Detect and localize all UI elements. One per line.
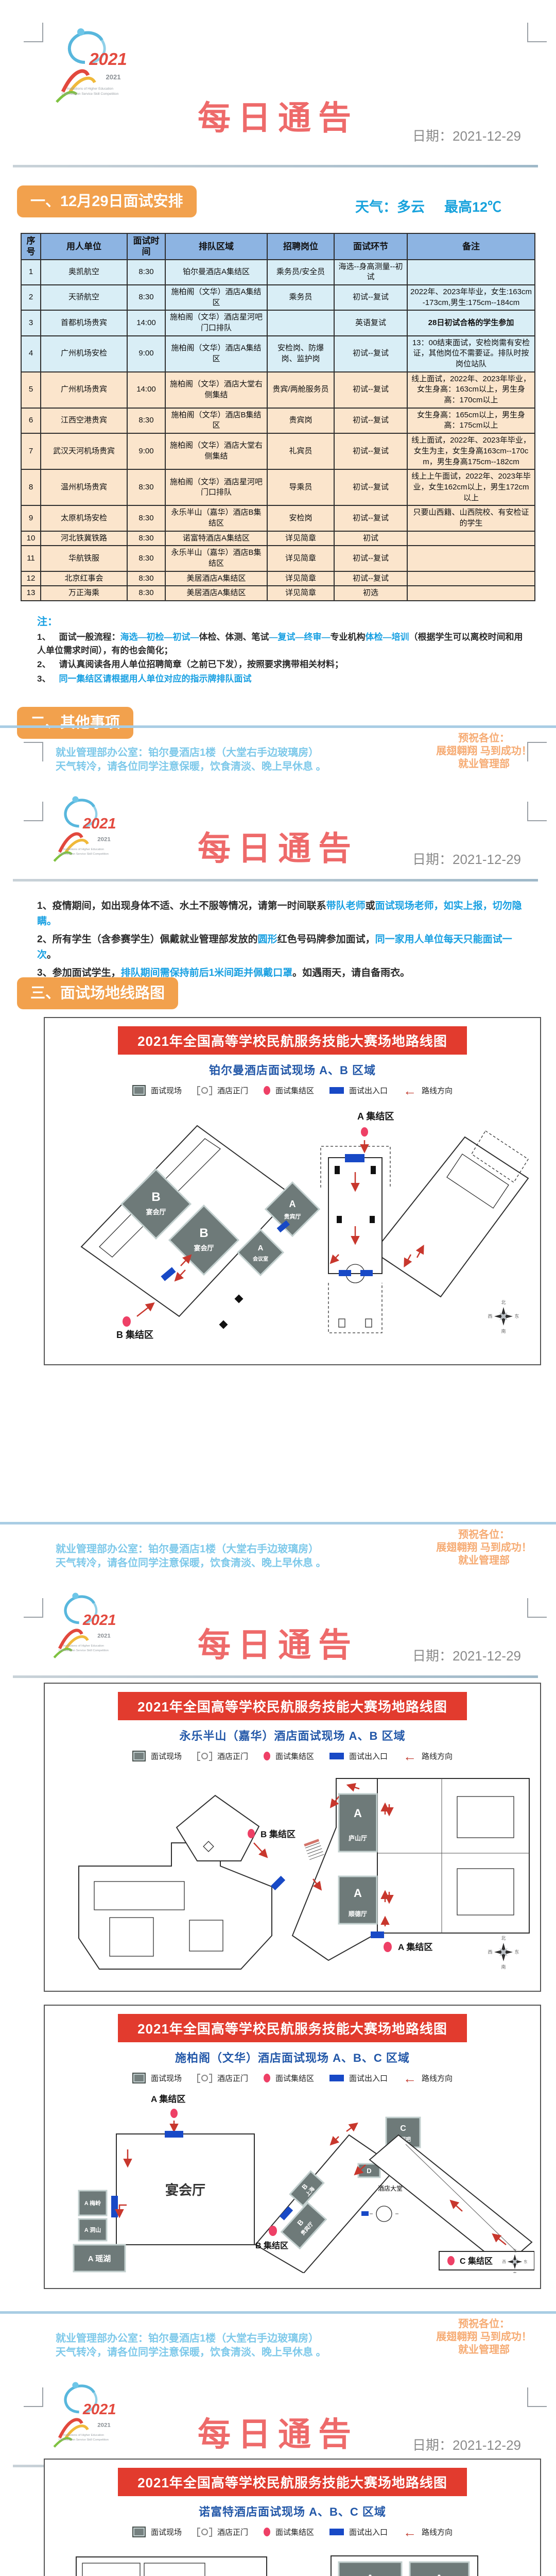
logo-head-dot [72,796,78,803]
cell-note: 13：00结束面试，安检岗需有安检证，其他岗位不需要证。排队时按岗位站队 [407,336,535,372]
c-assembly-label: C 集结区 [460,2256,493,2266]
item-2-highlight: 圆形 [258,934,277,945]
svg-text:A: A [366,2572,374,2576]
item-1-highlight: 带队老师 [326,901,366,911]
cell-no: 7 [21,433,41,469]
map-subtitle-yongle: 永乐半山（嘉华）酒店面试现场 A、B 区域 [45,1727,540,1743]
cell-time: 8:30 [127,586,165,601]
cell-area: 美居酒店A集结区 [165,571,267,586]
legend-item: 面试现场 [132,1751,182,1761]
room-letter: B [151,1190,160,1204]
cell-position [267,310,334,335]
legend-item: 面试现场 [132,2527,182,2537]
legend-item: 酒店正门 [197,1085,248,1096]
legend-label: 路线方向 [422,1751,453,1761]
date-label: 日期：2021-12-29 [346,2435,521,2454]
note-1-number: 1、 [37,632,59,642]
novotel-floor-plan: 电梯厅 1F [50,2541,534,2576]
note-2-text: 请认真阅读各用人单位招聘简章（之前已下发），按照要求携带相关材料； [59,659,343,669]
legend-item: 面试现场 [132,1085,182,1096]
logo-year-small: 2021 [106,73,121,81]
item-2-text: 2、所有学生（含参赛学生）佩戴就业管理部发放的 [37,934,258,945]
table-row: 13万正海乘8:30美居酒店A集结区详见简章初选 [21,586,535,601]
legend-label: 面试出入口 [349,1751,388,1761]
footer-divider [0,1522,556,1524]
logo-head-dot [72,1593,78,1599]
map-legend: 面试现场酒店正门面试集结区面试出入口←路线方向 [45,2073,540,2083]
route-arrow [137,1303,153,1316]
b-assembly-label: B 集结区 [116,1329,153,1340]
b-assembly-label: B 集结区 [255,2241,288,2250]
page-4: 2021 2021 Institutions of Higher Educati… [0,2365,556,2576]
legend-item: 面试集结区 [264,2073,314,2083]
legend-label: 酒店正门 [217,2527,248,2537]
pullman-floor-plan: B 宴会厅 B 宴会厅 A 贵宾厅 A 会议室 [50,1100,534,1340]
map-room-shunde: A 顺德厅 [339,1876,377,1924]
col-header-note: 备注 [407,233,535,260]
cell-time: 8:30 [127,571,165,586]
cell-area: 施柏阁（文华）酒店星河吧门口排队 [165,469,267,505]
cell-company: 太原机场安检 [41,505,127,531]
note-2: 2、请认真阅读各用人单位招聘简章（之前已下发），按照要求携带相关材料； [37,658,524,671]
left-wing [81,1126,292,1316]
cell-no: 13 [21,586,41,601]
legend-label: 面试现场 [151,2527,182,2537]
footer-wish-line2: 展翅翱翔 马到成功！ [407,1541,556,1554]
cell-stage: 英语复试 [334,310,407,335]
cell-stage: 初试--复试 [334,505,407,531]
room-name: 贵宾厅 [284,1213,301,1220]
page-1: 2021 2021 Institutions of Higher Educati… [0,0,556,779]
header-divider [13,879,538,882]
legend-label: 面试现场 [151,1085,182,1096]
svg-text:西: 西 [488,1314,492,1319]
direction-icon: ← [403,1087,416,1094]
cell-time: 8:30 [127,531,165,546]
note-1-text: 专业机构 [330,632,365,642]
room-letter: A [289,1199,296,1209]
a-assembly-dot [361,1127,368,1137]
cell-stage: 初试--复试 [334,469,407,505]
cell-no: 4 [21,336,41,372]
logo-head-dot [72,2382,78,2388]
note-1-highlight: 海选—初检—初试— [120,632,199,642]
site-icon [132,1085,146,1096]
cell-time: 8:30 [127,469,165,505]
item-1: 1、疫情期间，如出现身体不适、水土不服等情况，请第一时间联系带队老师或面试现场老… [37,899,526,930]
date-label: 日期：2021-12-29 [346,849,521,868]
cell-company: 万正海乘 [41,586,127,601]
cell-note: 线上上午面试，2022年、2023年毕业，女生162cm以上，男生172cm以上 [407,469,535,505]
room-letter: A [258,1244,264,1252]
item-2: 2、所有学生（含参赛学生）佩戴就业管理部发放的圆形红色号码牌参加面试，同一家用人… [37,932,526,963]
item-2-text: 。 [47,950,57,960]
entrance-icon [329,1087,344,1094]
table-row: 5广州机场贵宾14:00施柏阁（文华）酒店大堂右侧集结贵宾/两舱服务员初试--复… [21,372,535,408]
notes-label: 注： [37,614,524,630]
b-assembly-dot [248,1829,255,1838]
cell-company: 华航铁服 [41,546,127,571]
date-label: 日期：2021-12-29 [346,1646,521,1665]
item-3-text: 3、参加面试学生， [37,968,121,978]
cell-note [407,586,535,601]
svg-text:D: D [367,2167,371,2175]
room-name: 宴会厅 [194,1244,214,1252]
footer-wish-line2: 展翅翱翔 马到成功！ [407,745,556,758]
a-assembly-label: A 集结区 [357,1111,394,1122]
cell-area: 施柏阁（文华）酒店A集结区 [165,336,267,372]
cell-time: 9:00 [127,336,165,372]
a-assembly-dot [170,2109,178,2118]
cell-area: 施柏阁（文华）酒店B集结区 [165,408,267,433]
footer-office-note: 就业管理部办公室：铂尔曼酒店1楼（大堂右手边玻璃房） 天气转冷，请各位同学注意保… [56,2332,326,2360]
table-body: 1奥凯航空8:30铂尔曼酒店A集结区乘务员/安全员海选--身高测量--初试2天骄… [21,260,535,601]
cell-area: 施柏阁（文华）酒店大堂右侧集结 [165,372,267,408]
legend-item: 面试出入口 [329,2073,388,2083]
hotel-door-icon [197,2528,212,2537]
cell-area: 永乐半山（嘉华）酒店B集结区 [165,505,267,531]
note-1-highlight: —复试—终审— [269,632,330,642]
section-1-heading: 一、12月29日面试安排 [17,185,197,217]
entrance-marker [361,2211,369,2216]
cell-position: 贵宾/两舱服务员 [267,372,334,408]
map-box-pullman: 2021年全国高等学校民航服务技能大赛场地路线图 铂尔曼酒店面试现场 A、B 区… [44,1017,541,1365]
room-name: 庐山厅 [349,1834,367,1842]
stairs-icon [304,1839,324,1859]
svg-text:A 洞山: A 洞山 [84,2226,101,2233]
map-legend: 面试现场酒店正门面试集结区面试出入口←路线方向 [45,1751,540,1761]
table-row: 7武汉天河机场贵宾9:00施柏阁（文华）酒店大堂右侧集结礼宾员初试--复试线上面… [21,433,535,469]
cell-position: 礼宾员 [267,433,334,469]
weather-high-temp: 最高12℃ [444,196,501,216]
cell-time: 8:30 [127,505,165,531]
revolving-door-icon [376,2206,392,2222]
map-banner: 2021年全国高等学校民航服务技能大赛场地路线图 [118,1692,467,1720]
cell-company: 江西空港贵宾 [41,408,127,433]
cell-area: 铂尔曼酒店A集结区 [165,260,267,285]
cell-company: 温州机场贵宾 [41,469,127,505]
footer-office-line2: 天气转冷，请各位同学注意保暖，饮食清淡、晚上早休息 。 [56,760,326,774]
col-header-position: 招聘岗位 [267,233,334,260]
svg-text:A: A [435,2572,443,2576]
svg-text:北: 北 [513,2248,516,2253]
footer-office-note: 就业管理部办公室：铂尔曼酒店1楼（大堂右手边玻璃房） 天气转冷，请各位同学注意保… [56,746,326,774]
map-banner: 2021年全国高等学校民航服务技能大赛场地路线图 [118,2468,467,2496]
legend-label: 面试集结区 [275,1751,314,1761]
svg-text:A 瑶湖: A 瑶湖 [88,2254,111,2263]
note-3-number: 3、 [37,674,59,684]
shibaige-floor-plan: 宴会厅 A 梅岭 A 洞山 A 瑶湖 A 集结区 B [50,2088,534,2273]
note-1: 1、面试一般流程：海选—初检—初试—体检、体测、笔试—复试—终审—专业机构体检—… [37,631,524,657]
direction-icon: ← [403,2075,416,2082]
cell-no: 10 [21,531,41,546]
room-name: 会议室 [253,1256,268,1262]
cell-stage: 初试 [334,531,407,546]
cell-position: 乘务员 [267,285,334,310]
legend-label: 面试集结区 [275,1085,314,1096]
footer-divider [0,2311,556,2314]
svg-text:北: 北 [501,1300,506,1305]
cell-note [407,571,535,586]
col-header-time: 面试时间 [127,233,165,260]
cell-note: 28日初试合格的学生参加 [407,310,535,335]
map-subtitle-novotel: 诺富特酒店面试现场 A、B、C 区域 [45,2503,540,2519]
cell-position: 乘务员/安全员 [267,260,334,285]
table-row: 9太原机场安检8:30永乐半山（嘉华）酒店B集结区安检岗初试--复试只要山西籍、… [21,505,535,531]
cell-position: 安检岗、防爆岗、监护岗 [267,336,334,372]
cell-company: 广州机场安检 [41,336,127,372]
hotel-door-icon [197,1086,212,1095]
svg-text:东: 东 [514,1949,519,1955]
legend-item: 酒店正门 [197,1751,248,1761]
cell-time: 8:30 [127,408,165,433]
crop-mark [527,2387,547,2407]
entrance-marker [371,1931,384,1938]
item-1-text: 1、疫情期间，如出现身体不适、水土不服等情况，请第一时间联系 [37,901,326,911]
legend-label: 面试集结区 [275,2073,314,2083]
cell-position: 详见简章 [267,586,334,601]
cell-time: 14:00 [127,310,165,335]
cell-note: 线上面试，2022年、2023年毕业，女生为主，女生身高163cm--170cm… [407,433,535,469]
cell-position: 贵宾岗 [267,408,334,433]
cell-no: 11 [21,546,41,571]
other-matters-block: 1、疫情期间，如出现身体不适、水土不服等情况，请第一时间联系带队老师或面试现场老… [37,896,526,981]
cell-time: 8:30 [127,260,165,285]
legend-item: 面试出入口 [329,2527,388,2537]
legend-label: 路线方向 [422,2073,453,2083]
entrance-marker [360,1270,373,1276]
direction-icon: ← [403,1753,416,1760]
page-footer: 就业管理部办公室：铂尔曼酒店1楼（大堂右手边玻璃房） 天气转冷，请各位同学注意保… [0,725,556,779]
legend-item: 面试出入口 [329,1085,388,1096]
page-2: 2021 2021 Institutions of Higher Educati… [0,779,556,1575]
col-header-no: 序号 [21,233,41,260]
legend-item: 面试集结区 [264,2527,314,2537]
svg-text:南: 南 [501,1964,506,1970]
col-header-company: 用人单位 [41,233,127,260]
cell-stage: 初试--复试 [334,372,407,408]
legend-label: 面试出入口 [349,1085,388,1096]
entrance-marker [165,2131,183,2138]
col-header-stage: 面试环节 [334,233,407,260]
cell-note: 线上面试，2022年、2023年毕业，女生身高：163cm以上，男生身高：170… [407,372,535,408]
cell-area: 施柏阁（文华）酒店大堂右侧集结 [165,433,267,469]
room-name: 宴会厅 [146,1208,166,1216]
table-row: 12北京红事会8:30美居酒店A集结区详见简章初试--复试 [21,571,535,586]
cell-no: 9 [21,505,41,531]
entrance-marker [271,1876,285,1890]
entrance-icon [329,2529,344,2535]
a-assembly-dot [384,1942,392,1952]
b-assembly-dot [123,1316,131,1327]
route-arrow [346,2124,357,2131]
a-assembly-label: A 集结区 [398,1942,432,1952]
yongle-floor-plan: A 庐山厅 A 顺德厅 B 集结区 [50,1766,534,1976]
footer-wish-line3: 就业管理部 [407,1554,556,1567]
legend-item: ←路线方向 [403,2073,453,2083]
cell-note: 2022年、2023年毕业，女生:163cm-173cm,男生:175cm--1… [407,285,535,310]
site-icon [132,1751,146,1761]
route-arrow [331,2137,339,2144]
page-3: 2021 2021 Institutions of Higher Educati… [0,1575,556,2365]
cell-no: 8 [21,469,41,505]
legend-item: ←路线方向 [403,2527,453,2537]
map-legend: 面试现场酒店正门面试集结区面试出入口←路线方向 [45,2527,540,2537]
note-1-text: 面试一般流程： [59,632,120,642]
floor-2f: A 会议室1 A 会议室2 B 茶歇区 B 商务中心 [331,2556,478,2576]
entrance-marker [345,1154,364,1162]
room-name: 顺德厅 [349,1910,367,1918]
svg-text:西: 西 [502,2259,506,2264]
cell-note [407,260,535,285]
item-3-highlight: 排队期间需保持前后1米间距并佩戴口罩 [121,968,293,978]
footer-office-line1: 就业管理部办公室：铂尔曼酒店1楼（大堂右手边玻璃房） [56,746,326,760]
cell-note [407,546,535,571]
assembly-icon [264,2074,270,2082]
map-subtitle-pullman: 铂尔曼酒店面试现场 A、B 区域 [45,1061,540,1078]
cell-company: 首都机场贵宾 [41,310,127,335]
crop-mark [527,802,547,821]
map-box-yongle: 2021年全国高等学校民航服务技能大赛场地路线图 永乐半山（嘉华）酒店面试现场 … [44,1683,541,1992]
lobby-label: 酒店大堂 [378,2185,403,2192]
cell-no: 12 [21,571,41,586]
cell-company: 武汉天河机场贵宾 [41,433,127,469]
col-header-area: 排队区域 [165,233,267,260]
date-label: 日期：2021-12-29 [346,126,521,145]
cell-time: 9:00 [127,433,165,469]
svg-text:北: 北 [501,1936,506,1941]
assembly-icon [264,1752,270,1760]
footer-office-note: 就业管理部办公室：铂尔曼酒店1楼（大堂右手边玻璃房） 天气转冷，请各位同学注意保… [56,1543,326,1570]
map-room-meeting1: A 会议室1 [339,2562,402,2576]
cell-area: 诺富特酒店A集结区 [165,531,267,546]
legend-item: 面试集结区 [264,1751,314,1761]
table-header-row: 序号 用人单位 面试时间 排队区域 招聘岗位 面试环节 备注 [21,233,535,260]
svg-text:西: 西 [488,1950,492,1955]
svg-text:南: 南 [513,2272,516,2273]
assembly-icon [264,1086,270,1095]
table-row: 8温州机场贵宾8:30施柏阁（文华）酒店星河吧门口排队导乘员初试--复试线上上午… [21,469,535,505]
map-box-shibaige: 2021年全国高等学校民航服务技能大赛场地路线图 施柏阁（文华）酒店面试现场 A… [44,2005,541,2289]
header-divider [13,1675,538,1678]
cell-stage: 初试--复试 [334,571,407,586]
legend-item: ←路线方向 [403,1085,453,1096]
footer-office-line1: 就业管理部办公室：铂尔曼酒店1楼（大堂右手边玻璃房） [56,2332,326,2346]
map-banner: 2021年全国高等学校民航服务技能大赛场地路线图 [118,2014,467,2042]
footer-office-line2: 天气转冷，请各位同学注意保暖，饮食清淡、晚上早休息 。 [56,1556,326,1570]
interview-table: 序号 用人单位 面试时间 排队区域 招聘岗位 面试环节 备注 1奥凯航空8:30… [21,233,535,601]
cell-note: 女生身高：165cm以上，男生身高：175cm以上 [407,408,535,433]
note-3: 3、同一集结区请根据用人单位对应的指示牌排队面试 [37,672,524,686]
item-1-text: 或 [366,901,375,911]
table-row: 1奥凯航空8:30铂尔曼酒店A集结区乘务员/安全员海选--身高测量--初试 [21,260,535,285]
svg-text:东: 东 [514,1313,519,1319]
cell-stage: 初试--复试 [334,336,407,372]
cell-stage: 初试--复试 [334,285,407,310]
legend-item: 酒店正门 [197,2527,248,2537]
map-room-lushan: A 庐山厅 [339,1794,377,1852]
svg-text:南: 南 [501,1328,506,1334]
note-3-highlight: 同一集结区请根据用人单位对应的指示牌排队面试 [59,674,251,684]
section-3-heading: 三、面试场地线路图 [17,977,178,1009]
assembly-icon [264,2528,270,2536]
map-box-novotel: 2021年全国高等学校民航服务技能大赛场地路线图 诺富特酒店面试现场 A、B、C… [44,2459,541,2576]
crop-mark [527,23,547,42]
cell-stage: 初试--复试 [334,433,407,469]
legend-label: 面试现场 [151,2073,182,2083]
legend-item: 面试现场 [132,2073,182,2083]
cell-time: 8:30 [127,546,165,571]
legend-label: 路线方向 [422,2527,453,2537]
map-subtitle-shibaige: 施柏阁（文华）酒店面试现场 A、B、C 区域 [45,2049,540,2065]
footer-wish-line2: 展翅翱翔 马到成功！ [407,2331,556,2344]
compass-icon: 北 东 南 西 [488,1936,519,1970]
legend-item: 面试出入口 [329,1751,388,1761]
logo-org-line1: Institutions of Higher Education [67,87,113,91]
svg-text:C: C [400,2124,406,2133]
legend-label: 面试出入口 [349,2073,388,2083]
table-row: 10河北铁冀铁路8:30诺富特酒店A集结区详见简章初试 [21,531,535,546]
cell-note [407,531,535,546]
legend-label: 面试集结区 [275,2527,314,2537]
legend-item: 面试集结区 [264,1085,314,1096]
footer-wish: 预祝各位： 展翅翱翔 马到成功！ 就业管理部 [407,732,556,771]
map-room-meeting2: A 会议室2 [410,2562,469,2576]
hotel-door-icon [197,2074,212,2083]
logo-year: 2021 [89,49,127,69]
crop-mark [527,1598,547,1618]
footer-wish-line3: 就业管理部 [407,2344,556,2357]
cell-position: 详见简章 [267,546,334,571]
b-assembly-label: B 集结区 [260,1829,296,1839]
entrance-icon [329,2075,344,2081]
entrance-marker [339,1270,351,1276]
site-icon [132,2073,146,2083]
cell-company: 北京红事会 [41,571,127,586]
room-letter: A [354,1807,362,1820]
notes-block: 注： 1、面试一般流程：海选—初检—初试—体检、体测、笔试—复试—终审—专业机构… [37,614,524,685]
footer-divider [0,725,556,728]
cell-area: 永乐半山（嘉华）酒店B集结区 [165,546,267,571]
footer-wish-line1: 预祝各位： [407,732,556,745]
room-banquet-label: 宴会厅 [165,2182,205,2198]
legend-label: 面试出入口 [349,2527,388,2537]
entrance-icon [329,1753,344,1759]
footer-wish-line1: 预祝各位： [407,1529,556,1541]
right-wing [374,1131,528,1297]
b-assembly-dot [269,2226,277,2236]
a-assembly-label: A 集结区 [151,2094,185,2104]
note-1-highlight: 体检—培训 [365,632,409,642]
cell-company: 天骄航空 [41,285,127,310]
entrance-marker [111,2196,118,2217]
cell-company: 广州机场贵宾 [41,372,127,408]
footer-wish: 预祝各位： 展翅翱翔 马到成功！ 就业管理部 [407,1529,556,1567]
cell-area: 施柏阁（文华）酒店A集结区 [165,285,267,310]
cell-area: 施柏阁（文华）酒店星河吧门口排队 [165,310,267,335]
logo-head-dot [77,28,84,36]
page-footer: 就业管理部办公室：铂尔曼酒店1楼（大堂右手边玻璃房） 天气转冷，请各位同学注意保… [0,1522,556,1575]
table-row: 2天骄航空8:30施柏阁（文华）酒店A集结区乘务员初试--复试2022年、202… [21,285,535,310]
hotel-door-icon [197,1752,212,1761]
room-letter: A [354,1887,362,1900]
map-legend: 面试现场酒店正门面试集结区面试出入口←路线方向 [45,1085,540,1096]
cell-time: 8:30 [127,285,165,310]
note-1-text: 体检、体测、笔试 [199,632,269,642]
cell-no: 6 [21,408,41,433]
map-room-meiling: A 梅岭 [79,2191,107,2215]
table-row: 11华航铁服8:30永乐半山（嘉华）酒店B集结区详见简章初试--复试 [21,546,535,571]
